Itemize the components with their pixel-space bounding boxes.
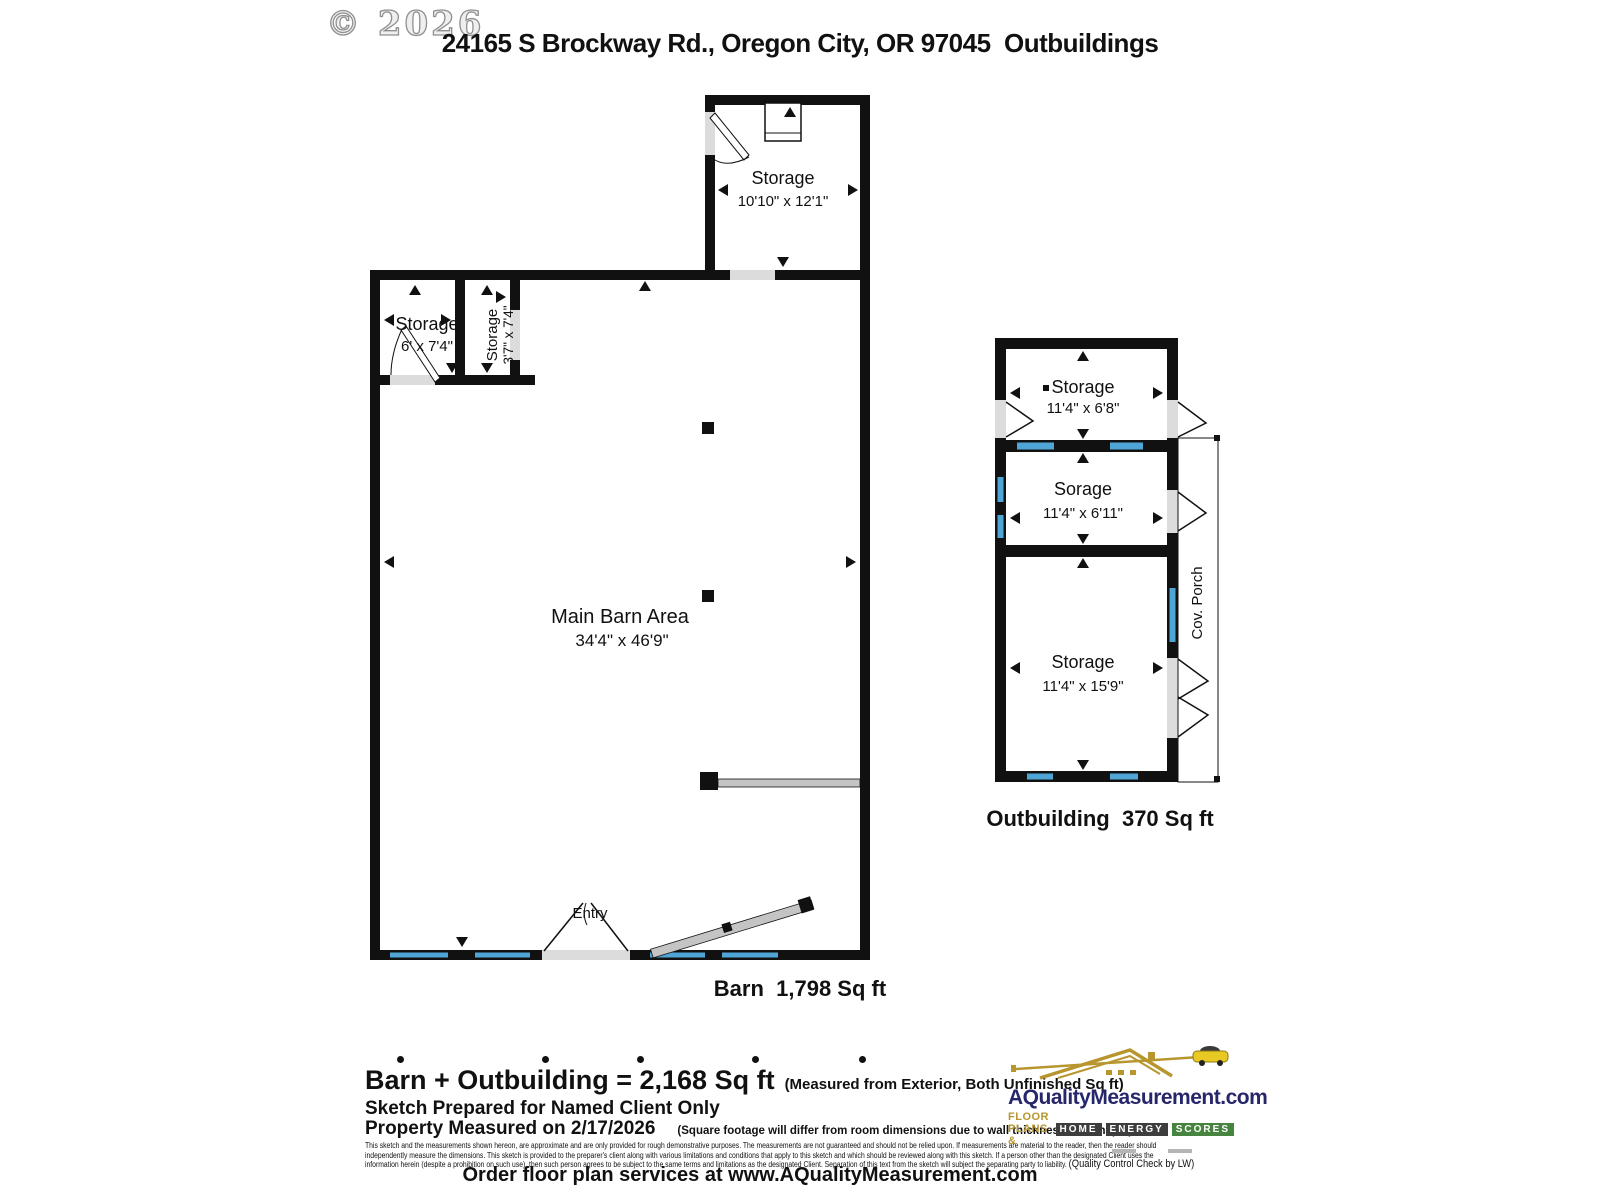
- post-marker: [1043, 385, 1049, 391]
- room-dims-storage3: 11'4" x 15'9": [1042, 678, 1123, 695]
- tagline-prefix: FLOOR PLANS &: [1008, 1111, 1052, 1147]
- measured-text: Property Measured on 2/17/2026: [365, 1118, 655, 1139]
- room-label-top-storage: Storage: [751, 168, 814, 188]
- svg-text:Storage: Storage: [484, 309, 501, 362]
- fold-dot: [859, 1056, 866, 1063]
- barn-door-openings: [390, 112, 775, 960]
- barn-caption: Barn 1,798 Sq ft: [620, 976, 980, 1002]
- fold-dot: [542, 1056, 549, 1063]
- top-storage-door: [710, 113, 749, 163]
- top-storage-fixture: [765, 103, 801, 141]
- fold-dot: [637, 1056, 644, 1063]
- sliding-rail: [700, 772, 860, 790]
- outbuilding-caption: Outbuilding 370 Sq ft: [945, 806, 1255, 832]
- tape-hook: [1011, 1065, 1016, 1072]
- room-label-storage1: Storage: [1051, 377, 1114, 397]
- porch-label: Cov. Porch: [1189, 566, 1206, 639]
- qc-note: (Quality Control Check by LW): [1069, 1158, 1195, 1170]
- room-dims-top-storage: 10'10" x 12'1": [738, 193, 829, 210]
- logo-graphic: [1008, 1036, 1234, 1082]
- total-area-text: Barn + Outbuilding = 2,168 Sq ft: [365, 1065, 775, 1095]
- fold-dot: [752, 1056, 759, 1063]
- entry-label: Entry: [572, 905, 608, 922]
- badge-energy: ENERGY: [1106, 1123, 1168, 1136]
- room-label-storage2: Sorage: [1054, 479, 1112, 499]
- tape-case-car-icon: [1193, 1046, 1228, 1066]
- svg-text:3'7" x 7'4": 3'7" x 7'4": [501, 305, 516, 364]
- room-dims-storage-left: 6' x 7'4": [401, 338, 453, 355]
- outbuilding-floor-plan: Storage 11'4" x 6'8" Sorage 11'4" x 6'11…: [955, 325, 1245, 800]
- room-label-main-barn: Main Barn Area: [551, 606, 690, 628]
- badge-scores: SCORES: [1172, 1123, 1234, 1136]
- room-dims-storage2: 11'4" x 6'11": [1043, 505, 1123, 522]
- subbar: [1168, 1149, 1192, 1153]
- roof-icon: [1040, 1050, 1172, 1078]
- room-label-storage3: Storage: [1051, 652, 1114, 672]
- svg-text:Cov. Porch: Cov. Porch: [1189, 566, 1206, 639]
- fold-dot: [397, 1056, 404, 1063]
- brand-name: AQualityMeasurement.com: [1008, 1087, 1234, 1108]
- room-label-storage-small: Storage 3'7" x 7'4": [484, 305, 516, 364]
- order-services-line: Order floor plan services at www.AQualit…: [430, 1164, 1070, 1187]
- barn-posts: [702, 422, 714, 602]
- badge-home: HOME: [1056, 1123, 1102, 1136]
- page-title: 24165 S Brockway Rd., Oregon City, OR 97…: [0, 28, 1600, 59]
- tagline-subbars: [1008, 1149, 1234, 1155]
- company-logo: AQualityMeasurement.com FLOOR PLANS & HO…: [1008, 1036, 1234, 1155]
- room-dims-storage1: 11'4" x 6'8": [1047, 400, 1120, 417]
- room-dims-main-barn: 34'4" x 46'9": [575, 631, 668, 650]
- room-label-storage-left: Storage: [395, 314, 458, 334]
- subbar: [1112, 1149, 1136, 1153]
- sliding-barn-door: [649, 896, 814, 959]
- floor-plan-sheet: © 2026 24165 S Brockway Rd., Oregon City…: [0, 0, 1600, 1200]
- barn-floor-plan: Storage 10'10" x 12'1" Storage 6' x 7'4"…: [355, 85, 875, 975]
- brand-tagline: FLOOR PLANS & HOME ENERGY SCORES: [1008, 1111, 1234, 1147]
- barn-dimension-arrows: [384, 107, 858, 947]
- barn-exterior-walls: [370, 95, 870, 960]
